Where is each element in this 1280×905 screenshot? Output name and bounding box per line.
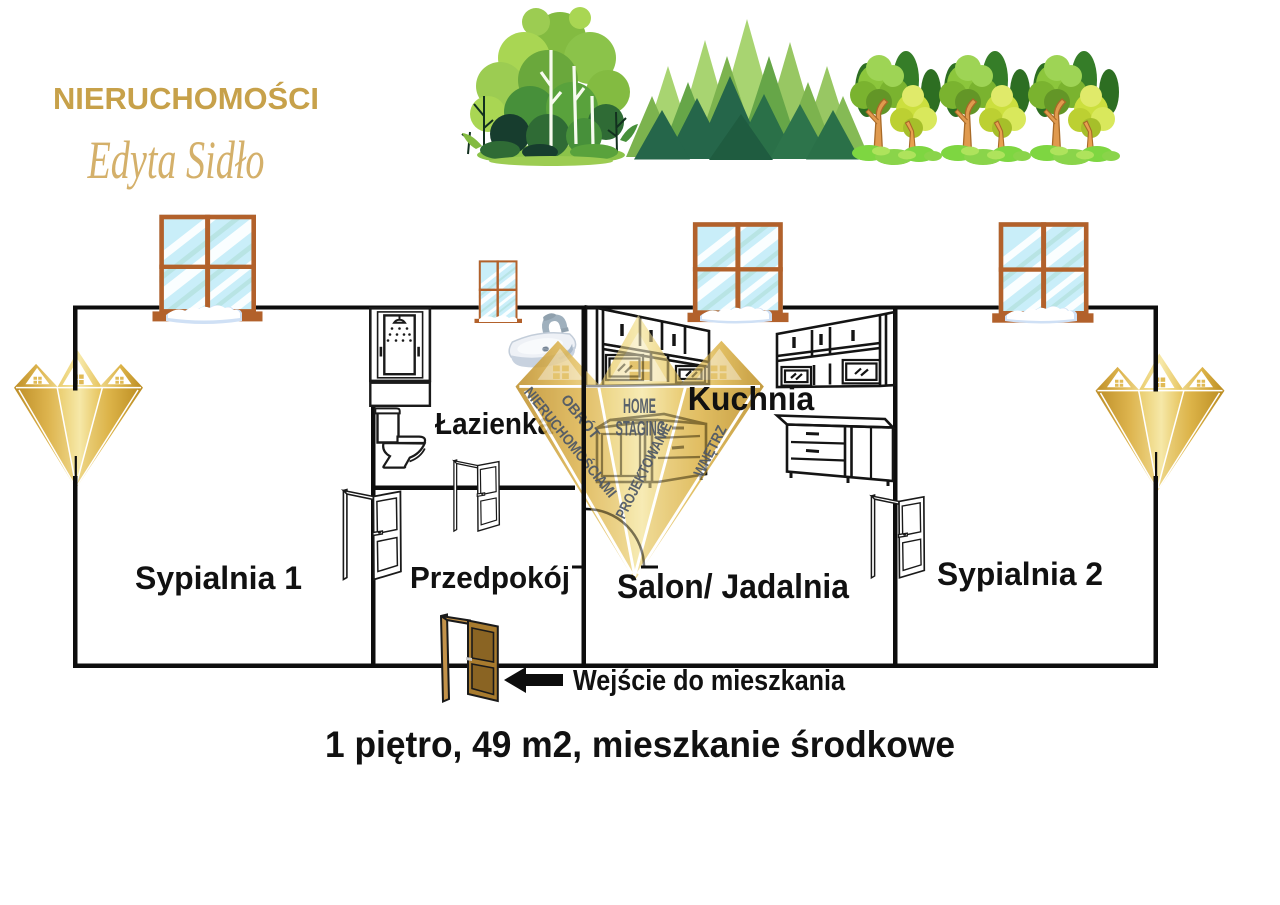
- svg-text:Sypialnia 2: Sypialnia 2: [937, 556, 1103, 592]
- svg-text:NIERUCHOMOŚCI: NIERUCHOMOŚCI: [53, 80, 319, 116]
- svg-text:Przedpokój: Przedpokój: [410, 560, 570, 595]
- svg-text:Wejście do mieszkania: Wejście do mieszkania: [573, 665, 846, 697]
- svg-text:Salon/ Jadalnia: Salon/ Jadalnia: [617, 568, 850, 606]
- svg-text:HOME: HOME: [623, 395, 656, 418]
- svg-text:Edyta Sidło: Edyta Sidło: [87, 130, 265, 190]
- svg-text:1 piętro, 49 m2, mieszkanie śr: 1 piętro, 49 m2, mieszkanie środkowe: [325, 724, 955, 765]
- svg-text:Sypialnia 1: Sypialnia 1: [135, 560, 302, 596]
- svg-text:Kuchnia: Kuchnia: [688, 380, 815, 417]
